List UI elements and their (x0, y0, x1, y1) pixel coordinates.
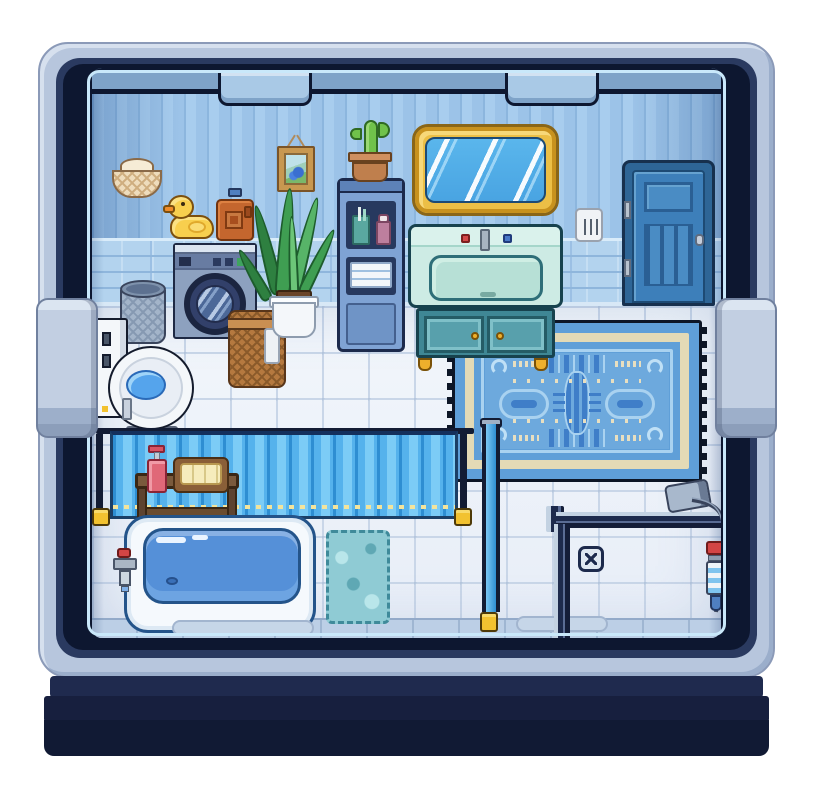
detergent-cap (228, 188, 242, 197)
cabinet-knob[interactable] (496, 332, 504, 340)
door-hinge (624, 201, 631, 219)
bathroom-shelf[interactable] (337, 178, 405, 352)
pedestal-base-mid (44, 696, 769, 722)
picture-art (284, 153, 308, 185)
tub-faucet-tip (121, 586, 129, 592)
frame-top-bar (92, 68, 721, 94)
light-switch[interactable] (575, 208, 603, 242)
toothbrush-cup (352, 215, 370, 245)
cactus-pot (352, 162, 388, 182)
lamp-basket (112, 170, 162, 198)
cactus-pot-rim (348, 152, 392, 162)
sink-drain (480, 292, 496, 297)
rug-dash-motif (615, 435, 641, 441)
soap-dispenser[interactable] (147, 459, 167, 493)
hot-tap[interactable] (461, 234, 470, 243)
washer-button[interactable] (213, 258, 221, 266)
vanity-foot (418, 358, 432, 371)
rug-eye-motif (499, 389, 549, 419)
latch-tab-right[interactable] (505, 72, 599, 106)
rug-dash-motif (513, 435, 539, 441)
toilet-hinge (122, 398, 132, 420)
rug-ray-motif (553, 393, 565, 415)
shelf-lower-panel (346, 303, 396, 345)
tray-towels (180, 463, 222, 485)
scene-canvas (0, 0, 813, 788)
toilet-flush-button[interactable] (102, 354, 111, 368)
cosmetic-jar (376, 221, 391, 245)
water-shine (192, 535, 208, 540)
duck-eye (181, 202, 185, 206)
cabinet-knob[interactable] (471, 332, 479, 340)
mirror-glass (425, 137, 546, 203)
bathroom-room (92, 68, 721, 638)
toilet-bowl (108, 346, 194, 430)
rug-swirl (647, 427, 663, 443)
pole-foot (92, 508, 110, 526)
door-knob[interactable] (695, 234, 704, 246)
toilet-flush-button[interactable] (102, 332, 111, 346)
curtain-pole (460, 434, 467, 516)
rubber-duck[interactable] (168, 193, 216, 243)
door-face (632, 170, 705, 303)
rug-dash-motif (615, 361, 641, 367)
curtain-side-panel (482, 424, 500, 612)
shower-head-tip (710, 595, 721, 611)
pole-foot (454, 508, 472, 526)
cold-tap[interactable] (503, 234, 512, 243)
washer-button[interactable] (225, 258, 233, 266)
potted-plant[interactable] (246, 188, 342, 340)
shower-head-cap (706, 541, 721, 555)
sink-vanity[interactable] (408, 224, 563, 374)
rug-eye-motif (605, 389, 655, 419)
water-shine (156, 537, 186, 543)
vanity-cabinet[interactable] (416, 308, 555, 358)
rug-ray-motif (589, 393, 601, 415)
vanity-counter (408, 224, 563, 308)
tub-faucet (113, 558, 137, 570)
mirror[interactable] (412, 124, 559, 216)
toothbrush (363, 209, 366, 221)
tub-faucet-pipe (119, 570, 131, 586)
cactus[interactable] (344, 118, 396, 184)
shower-head[interactable] (702, 541, 721, 617)
shower-head-body (706, 561, 721, 595)
frame-handle-left[interactable] (36, 298, 98, 438)
door-hinge (624, 259, 631, 277)
towel-tray[interactable] (173, 457, 229, 493)
toilet-bolt (102, 406, 108, 412)
duck-beak (163, 205, 175, 213)
folded-towels (350, 262, 392, 288)
rug-swirl (647, 359, 663, 375)
bathtub[interactable] (124, 515, 316, 633)
toothbrush (358, 207, 361, 221)
cabinet-door[interactable] (487, 316, 547, 353)
door-upper-panel (644, 182, 693, 212)
pedestal-base-bottom (44, 720, 769, 756)
toilet-water (126, 370, 166, 400)
vanity-foot (534, 358, 548, 371)
shelf-compartment (346, 257, 396, 295)
curtain-pole (96, 434, 103, 516)
pole-foot (480, 612, 498, 632)
rug-dotted-line (513, 419, 641, 423)
sink-faucet (480, 229, 490, 251)
shower-partition-side (554, 524, 570, 638)
door[interactable] (622, 160, 715, 306)
door-lower-slats (644, 224, 693, 286)
detergent-label (225, 211, 243, 229)
shelf-compartment (346, 201, 396, 249)
cactus-stem (364, 120, 378, 156)
pedestal-base-top (50, 676, 763, 698)
tub-water (143, 528, 301, 604)
cactus-arm (378, 122, 390, 138)
hanging-lamp[interactable] (112, 158, 162, 198)
tub-faucet-knob[interactable] (117, 548, 131, 558)
washer-display (179, 257, 191, 266)
plant-leaf (287, 216, 300, 298)
switch-slits-icon (584, 219, 598, 235)
cabinet-door[interactable] (424, 316, 484, 353)
duck-wing (188, 221, 206, 233)
sink-basin (429, 255, 543, 301)
rug-dotted-line (513, 379, 641, 383)
bath-mat[interactable] (326, 530, 390, 624)
latch-tab-left[interactable] (218, 72, 312, 106)
floor-step (172, 620, 314, 636)
shower-drain (578, 546, 604, 572)
plant-pot (272, 302, 316, 338)
wall-picture[interactable] (277, 132, 315, 194)
cactus-arm (350, 128, 362, 140)
tub-drain (166, 577, 178, 585)
picture-frame (277, 146, 315, 192)
frame-handle-right[interactable] (715, 298, 777, 438)
bin-hole (126, 284, 160, 294)
